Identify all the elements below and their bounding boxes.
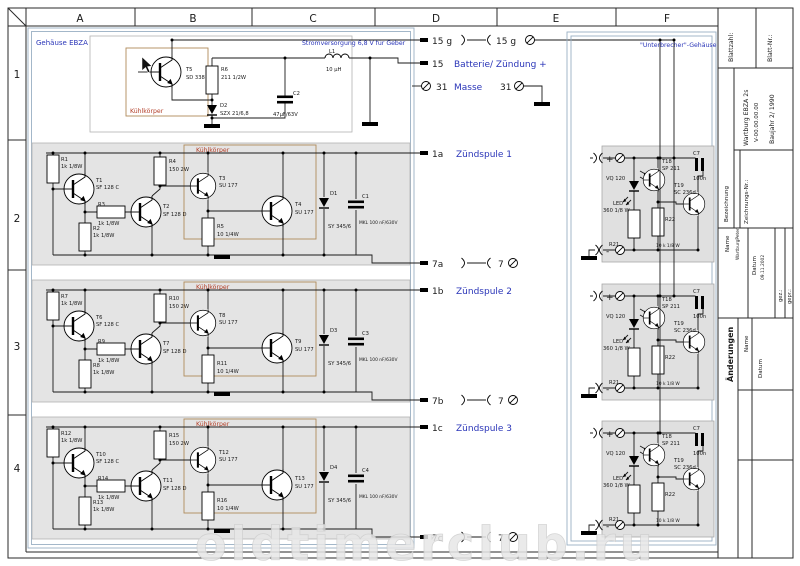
r3-ref: R3 — [98, 202, 105, 208]
r12-ref: R12 — [61, 431, 71, 437]
svg-text:LED: LED — [613, 476, 623, 482]
t6-ref: T6 — [95, 315, 102, 321]
resistor-r2 — [79, 223, 91, 251]
screw-terminal-icon — [616, 154, 625, 163]
d2-value: SZX 21/6,8 — [220, 111, 249, 117]
r9-value: 1k 1/8W — [98, 358, 119, 364]
aenderungen-datum-label: Datum — [758, 359, 764, 378]
row-2: 2 — [14, 213, 21, 225]
ground-icon — [534, 102, 550, 106]
r13-value: 1k 1/8W — [93, 507, 114, 513]
terminal-15-label: Batterie/ Zündung + — [454, 60, 547, 70]
transistor-t10 — [64, 447, 94, 479]
svg-text:R22: R22 — [665, 492, 675, 498]
r8-value: 1k 1/8W — [93, 370, 114, 376]
resistor-r13 — [79, 497, 91, 525]
svg-text:+: + — [606, 430, 614, 440]
t11-value: SF 128 D — [163, 486, 186, 492]
d1-value: SY 345/6 — [328, 224, 351, 230]
t2-value: SF 128 D — [163, 212, 186, 218]
transistor-t5 — [151, 56, 181, 88]
resistor-r22 — [652, 483, 664, 511]
svg-text:T18: T18 — [661, 297, 672, 303]
t12-value: SU 177 — [219, 457, 238, 463]
connector-icon — [462, 35, 465, 45]
terminal-bar — [420, 38, 428, 42]
svg-text:100n: 100n — [693, 451, 706, 457]
terminal-15g-right: 15 g — [496, 37, 516, 47]
r13-ref: R13 — [93, 500, 103, 506]
t10-value: SF 128 C — [96, 459, 119, 465]
transistor-t11 — [131, 470, 161, 502]
wiring-diagram: A B C D E F 1 2 3 4 Gehäuse EBZA Stromve… — [0, 0, 800, 566]
terminal-1c: 1c — [432, 424, 443, 434]
zeichnungsnr-label: Zeichnungs-Nr.: — [744, 180, 750, 224]
r4-ref: R4 — [169, 159, 177, 165]
d3-ref: D3 — [330, 328, 337, 334]
col-F: F — [664, 13, 670, 25]
heatsink-label: Kühlkörper — [130, 108, 164, 115]
ground-icon — [581, 394, 597, 398]
screw-terminal-icon — [515, 82, 524, 91]
r15-ref: R15 — [169, 433, 179, 439]
resistor-r15 — [154, 431, 166, 459]
screw-terminal-icon — [526, 36, 535, 45]
t7-ref: T7 — [162, 341, 169, 347]
l1-ref: L1 — [329, 49, 335, 55]
resistor-r22 — [652, 208, 664, 236]
r16-value: 10 1/4W — [217, 506, 239, 512]
c1-ref: C1 — [362, 194, 369, 200]
screw-terminal-icon — [422, 82, 431, 91]
r5-value: 10 1/4W — [217, 232, 239, 238]
ground-icon — [214, 392, 230, 396]
d4-value: SY 345/6 — [328, 498, 351, 504]
resistor-r22 — [652, 346, 664, 374]
led-value: 360 1/8 W — [603, 208, 630, 214]
ground-icon — [214, 255, 230, 259]
channel-1: Kühlkörper R1 1k 1/8W T1 SF 128 C R3 1k … — [32, 143, 410, 265]
r8-ref: R8 — [93, 363, 100, 369]
t18-value: SP 211 — [662, 166, 680, 172]
col-C: C — [309, 13, 316, 25]
drawing-version: V-00.00.00.00 — [754, 102, 760, 142]
gepr-label: gepr.: — [787, 289, 793, 304]
svg-text:R21: R21 — [609, 380, 619, 386]
transistor-t9 — [262, 332, 292, 364]
c2-value: 47µF/63V — [273, 112, 298, 118]
t4-value: SU 177 — [295, 210, 314, 216]
terminal-31-label: Masse — [454, 83, 483, 93]
breaker-housing-label: "Unterbrecher"-Gehäuse — [640, 42, 717, 49]
c4-value: MKL 100 nF/630V — [359, 494, 397, 500]
terminal-1a-label: Zündspule 1 — [456, 150, 512, 160]
t4-ref: T4 — [294, 202, 302, 208]
terminal-1c-label: Zündspule 3 — [456, 424, 512, 434]
bezeichnung-label: Bezeichnung — [724, 186, 730, 222]
d2-ref: D2 — [220, 103, 227, 109]
resistor-r21 — [628, 210, 640, 238]
terminal-15: 15 — [432, 60, 443, 70]
r6-ref: R6 — [221, 67, 228, 73]
r12-value: 1k 1/8W — [61, 438, 82, 444]
channel-2: Kühlkörper R7 1k 1/8W T6 SF 128 C R9 1k … — [32, 280, 410, 402]
transistor-t4 — [262, 195, 292, 227]
aenderungen-name-label: Name — [744, 335, 750, 352]
svg-text:T19: T19 — [673, 321, 684, 327]
terminal-1b: 1b — [432, 287, 444, 297]
col-D: D — [432, 13, 440, 25]
d4-ref: D4 — [330, 465, 338, 471]
r3-value: 1k 1/8W — [98, 221, 119, 227]
t10-ref: T10 — [95, 452, 106, 458]
svg-text:C7: C7 — [693, 289, 700, 295]
transistor-t13 — [262, 469, 292, 501]
svg-text:SP 211: SP 211 — [662, 304, 680, 310]
svg-text:SP 211: SP 211 — [662, 441, 680, 447]
r10-ref: R10 — [169, 296, 179, 302]
t5-value: SD 338 — [186, 75, 205, 81]
ground-icon — [362, 122, 378, 126]
transistor-t3 — [190, 172, 216, 199]
svg-text:360 1/8 W: 360 1/8 W — [603, 483, 630, 489]
r7-value: 1k 1/8W — [61, 301, 82, 307]
title-block: Blattzahl: Blatt-Nr.: Wartburg EBZA 2s V… — [718, 8, 793, 558]
transistor-t2 — [131, 196, 161, 228]
watermark: oldtimerclub.ru — [195, 517, 657, 566]
t18-ref: T18 — [661, 159, 672, 165]
resistor-r21 — [628, 348, 640, 376]
t13-ref: T13 — [294, 476, 305, 482]
terminal-31-right: 31 — [500, 83, 511, 93]
col-E: E — [553, 13, 560, 25]
resistor-r1 — [47, 155, 59, 183]
transistor-t7 — [131, 333, 161, 365]
terminal-7a: 7a — [432, 260, 443, 270]
sensor-box-2: + - VQ 120 LED 360 1/8 W R21 T18 SP 211 … — [602, 284, 714, 400]
resistor-r16 — [202, 492, 214, 520]
t8-value: SU 177 — [219, 320, 238, 326]
t2-ref: T2 — [162, 204, 169, 210]
t19-ref: T19 — [673, 183, 684, 189]
row-3: 3 — [14, 341, 21, 353]
r15-value: 150 2W — [169, 441, 189, 447]
r16-ref: R16 — [217, 498, 227, 504]
resistor-r6 — [206, 66, 218, 94]
name-value: WartburgPeter — [735, 228, 741, 260]
r4-value: 150 2W — [169, 167, 189, 173]
sensor-box-1: + - VQ 120 LED 360 1/8 W R21 T18 SP 211 … — [602, 146, 714, 262]
t9-value: SU 177 — [295, 347, 314, 353]
c3-value: MKL 100 nF/630V — [359, 357, 397, 363]
svg-text:SC 236d: SC 236d — [674, 465, 696, 471]
t5-ref: T5 — [185, 67, 192, 73]
r21-ref: R21 — [609, 242, 619, 248]
power-supply-section: Stromversorgung 6,8 V für Geber Kühlkörp… — [90, 36, 422, 132]
svg-text:+: + — [606, 293, 614, 303]
svg-text:SC 236d: SC 236d — [674, 328, 696, 334]
supply-title: Stromversorgung 6,8 V für Geber — [302, 40, 406, 47]
r2-value: 1k 1/8W — [93, 233, 114, 239]
t9-ref: T9 — [294, 339, 301, 345]
r1-ref: R1 — [61, 157, 68, 163]
t11-ref: T11 — [162, 478, 173, 484]
datum-value: 09.11.2002 — [760, 255, 766, 280]
d1-ref: D1 — [330, 191, 337, 197]
svg-text:-: - — [606, 385, 609, 395]
r9-ref: R9 — [98, 339, 105, 345]
svg-text:10 k 1/8 W: 10 k 1/8 W — [656, 518, 680, 524]
t12-ref: T12 — [218, 450, 229, 456]
d3-value: SY 345/6 — [328, 361, 351, 367]
r10-value: 150 2W — [169, 304, 189, 310]
blattnr-label: Blatt-Nr.: — [767, 35, 774, 63]
c7-ref: C7 — [693, 151, 700, 157]
terminal-1b-label: Zündspule 2 — [456, 287, 512, 297]
terminal-7b: 7b — [432, 397, 444, 407]
col-B: B — [189, 13, 196, 25]
resistor-r7 — [47, 292, 59, 320]
r11-value: 10 1/4W — [217, 369, 239, 375]
c7-value: 100n — [693, 176, 706, 182]
c1-value: MKL 100 nF/630V — [359, 220, 397, 226]
aenderungen-label: Änderungen — [725, 326, 735, 382]
r6-value: 211 1/2W — [221, 75, 246, 81]
gez-label: gez.: — [778, 289, 784, 302]
plus-label: + — [606, 155, 614, 165]
row-1: 1 — [14, 69, 21, 81]
transistor-t12 — [190, 446, 216, 473]
r1-value: 1k 1/8W — [61, 164, 82, 170]
t13-value: SU 177 — [295, 484, 314, 490]
c4-ref: C4 — [362, 468, 370, 474]
svg-text:LED: LED — [613, 339, 623, 345]
r7-ref: R7 — [61, 294, 68, 300]
drawing-title: Wartburg EBZA 2s — [743, 90, 750, 146]
datum-label: Datum — [752, 256, 758, 275]
terminal-7a-right: 7 — [498, 260, 504, 270]
name-label: Name — [725, 235, 731, 252]
terminal-7b-right: 7 — [498, 397, 504, 407]
r5-ref: R5 — [217, 224, 224, 230]
row-4: 4 — [14, 463, 21, 475]
drawing-year: Baujahr 2/ 1990 — [769, 94, 776, 144]
terminal-15g-left: 15 g — [432, 37, 452, 47]
ebza-housing-label: Gehäuse EBZA — [36, 39, 88, 47]
transistor-t6 — [64, 310, 94, 342]
c2-ref: C2 — [293, 91, 300, 97]
transistor-t1 — [64, 173, 94, 205]
t1-ref: T1 — [95, 178, 102, 184]
svg-text:VQ 120: VQ 120 — [606, 451, 625, 457]
r14-ref: R14 — [98, 476, 109, 482]
r11-ref: R11 — [217, 361, 227, 367]
resistor-r5 — [202, 218, 214, 246]
terminal-31: 31 — [436, 83, 447, 93]
svg-text:100n: 100n — [693, 314, 706, 320]
ground-icon — [581, 256, 597, 260]
svg-text:360 1/8 W: 360 1/8 W — [603, 346, 630, 352]
terminal-bar — [420, 61, 428, 65]
t6-value: SF 128 C — [96, 322, 119, 328]
l1-value: 10 µH — [326, 67, 342, 73]
minus-label: - — [606, 247, 609, 257]
c3-ref: C3 — [362, 331, 369, 337]
resistor-r11 — [202, 355, 214, 383]
t7-value: SF 128 D — [163, 349, 186, 355]
col-A: A — [76, 13, 84, 25]
t3-ref: T3 — [218, 176, 225, 182]
r2-ref: R2 — [93, 226, 100, 232]
connector-icon — [488, 35, 491, 45]
blattzahl-label: Blattzahl: — [728, 33, 735, 62]
resistor-r21 — [628, 485, 640, 513]
terminal-1a: 1a — [432, 150, 443, 160]
svg-text:R22: R22 — [665, 355, 675, 361]
t1-value: SF 128 C — [96, 185, 119, 191]
t19-value: SC 236d — [674, 190, 696, 196]
transistor-t8 — [190, 309, 216, 336]
t3-value: SU 177 — [219, 183, 238, 189]
ground-icon — [204, 124, 220, 128]
t8-ref: T8 — [218, 313, 225, 319]
resistor-r4 — [154, 157, 166, 185]
schematic-page: A B C D E F 1 2 3 4 Gehäuse EBZA Stromve… — [0, 0, 800, 566]
resistor-r8 — [79, 360, 91, 388]
svg-text:T18: T18 — [661, 434, 672, 440]
resistor-r10 — [154, 294, 166, 322]
resistor-r12 — [47, 429, 59, 457]
svg-text:VQ 120: VQ 120 — [606, 314, 625, 320]
vq120-label: VQ 120 — [606, 176, 625, 182]
led-label: LED — [613, 201, 623, 207]
svg-text:T19: T19 — [673, 458, 684, 464]
svg-text:C7: C7 — [693, 426, 700, 432]
